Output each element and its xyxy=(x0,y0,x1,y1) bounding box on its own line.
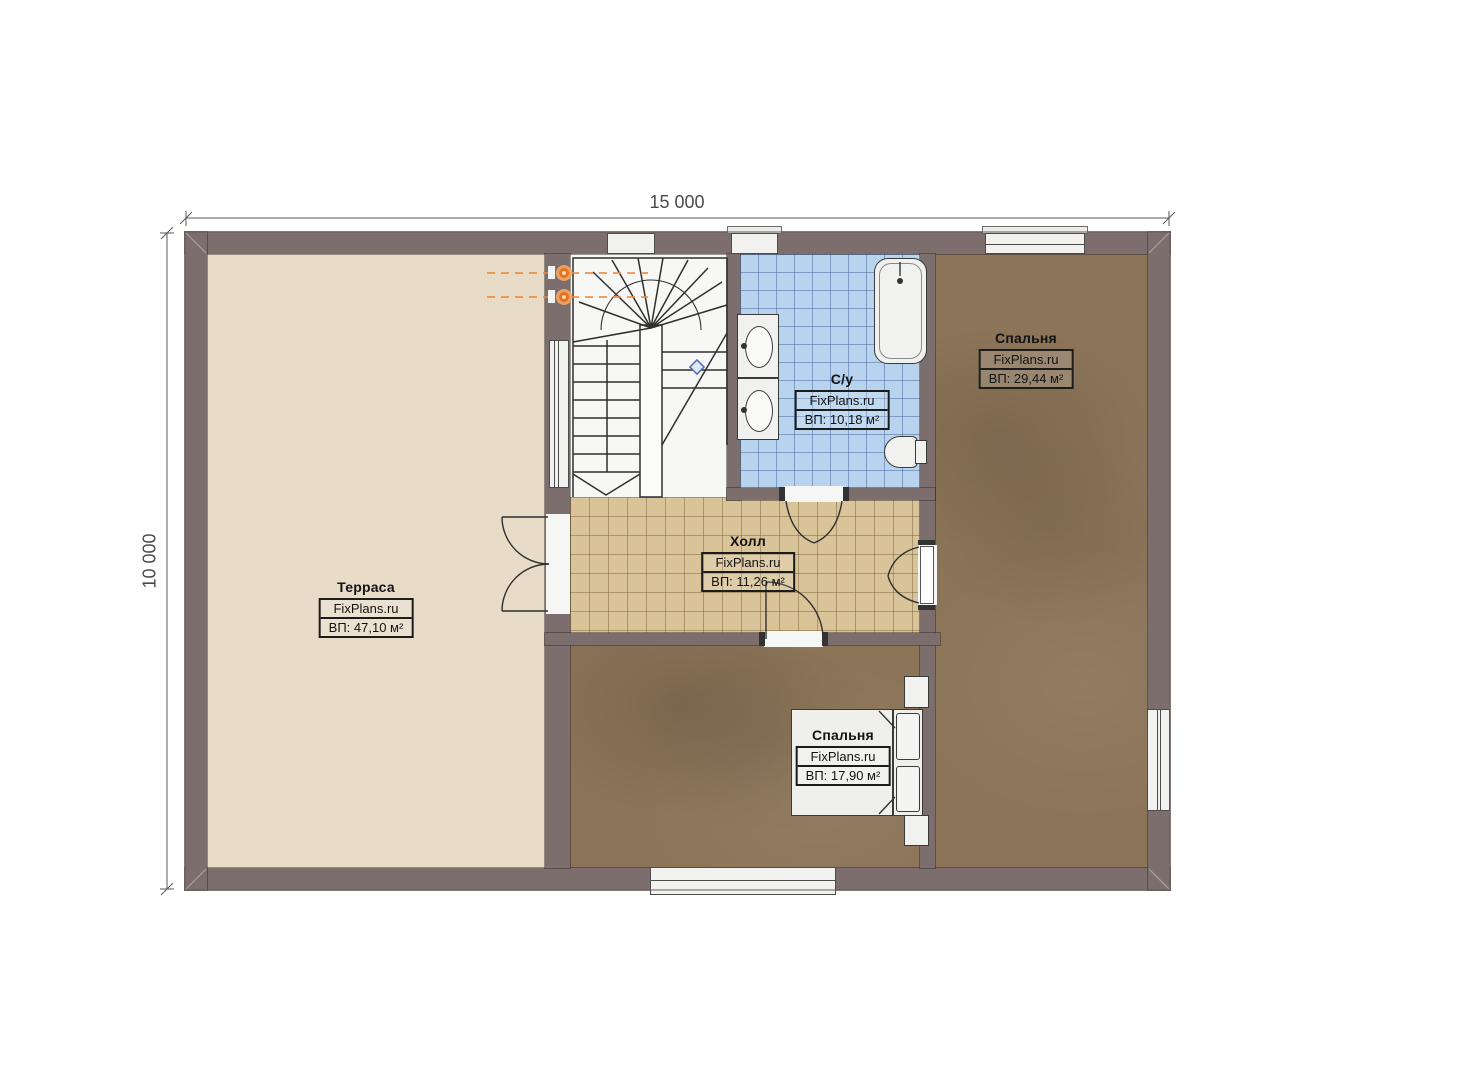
room-label-box: FixPlans.ru ВП: 29,44 м² xyxy=(979,349,1074,389)
brand-text: FixPlans.ru xyxy=(703,554,793,573)
sink-basin-icon xyxy=(745,326,773,368)
terrace-floor xyxy=(207,254,547,868)
terrace-door-opening xyxy=(546,514,570,614)
room-label-terrace: Терраса FixPlans.ru ВП: 47,10 м² xyxy=(319,579,414,638)
window-top-stairs xyxy=(607,233,655,254)
window-top-bedroom xyxy=(985,233,1085,254)
window-right-bedroom xyxy=(1147,709,1170,811)
room-label-box: FixPlans.ru ВП: 11,26 м² xyxy=(701,552,795,592)
sink-counter-top-icon xyxy=(737,314,779,378)
bathroom-door-opening xyxy=(784,486,844,502)
pillow-icon xyxy=(896,766,920,812)
room-title: Спальня xyxy=(812,727,874,743)
brand-text: FixPlans.ru xyxy=(981,351,1072,370)
area-text: ВП: 17,90 м² xyxy=(798,767,889,784)
room-label-hall: Холл FixPlans.ru ВП: 11,26 м² xyxy=(701,533,795,592)
window-top-bath xyxy=(731,233,778,254)
brand-text: FixPlans.ru xyxy=(798,748,889,767)
room-title: Терраса xyxy=(337,579,395,595)
window-terrace-interior xyxy=(549,340,569,488)
floor-plan-canvas: 15 000 10 000 xyxy=(0,0,1473,1080)
room-title: Холл xyxy=(730,533,766,549)
area-text: ВП: 11,26 м² xyxy=(703,573,793,590)
room-title: С/у xyxy=(831,371,853,387)
room-label-box: FixPlans.ru ВП: 47,10 м² xyxy=(319,598,414,638)
room-title: Спальня xyxy=(995,330,1057,346)
brand-text: FixPlans.ru xyxy=(797,392,888,411)
window-bottom-bedroom xyxy=(650,867,836,895)
wall-outer-left xyxy=(185,232,207,890)
area-text: ВП: 10,18 м² xyxy=(797,411,888,428)
bathtub-icon xyxy=(874,258,927,364)
room-label-bedroom-bottom: Спальня FixPlans.ru ВП: 17,90 м² xyxy=(796,727,891,786)
toilet-icon xyxy=(884,436,918,468)
room-label-bathroom: С/у FixPlans.ru ВП: 10,18 м² xyxy=(795,371,890,430)
stair-hall-floor xyxy=(570,254,727,500)
pillow-icon xyxy=(896,713,920,760)
nightstand-icon xyxy=(904,815,929,846)
room-label-box: FixPlans.ru ВП: 10,18 м² xyxy=(795,390,890,430)
sink-counter-bottom-icon xyxy=(737,378,779,440)
area-text: ВП: 47,10 м² xyxy=(321,619,412,636)
sink-basin-icon xyxy=(745,390,773,432)
wall-hall-bedroom xyxy=(545,633,940,645)
nightstand-icon xyxy=(904,676,929,708)
brand-text: FixPlans.ru xyxy=(321,600,412,619)
bedroom-right-door-leaf xyxy=(920,546,934,604)
room-label-box: FixPlans.ru ВП: 17,90 м² xyxy=(796,746,891,786)
toilet-tank-icon xyxy=(915,440,927,464)
dimension-height-label: 10 000 xyxy=(140,533,161,588)
area-text: ВП: 29,44 м² xyxy=(981,370,1072,387)
room-label-bedroom-top: Спальня FixPlans.ru ВП: 29,44 м² xyxy=(979,330,1074,389)
bedroom-bottom-door-opening xyxy=(764,631,823,647)
dimension-width-label: 15 000 xyxy=(649,192,704,213)
